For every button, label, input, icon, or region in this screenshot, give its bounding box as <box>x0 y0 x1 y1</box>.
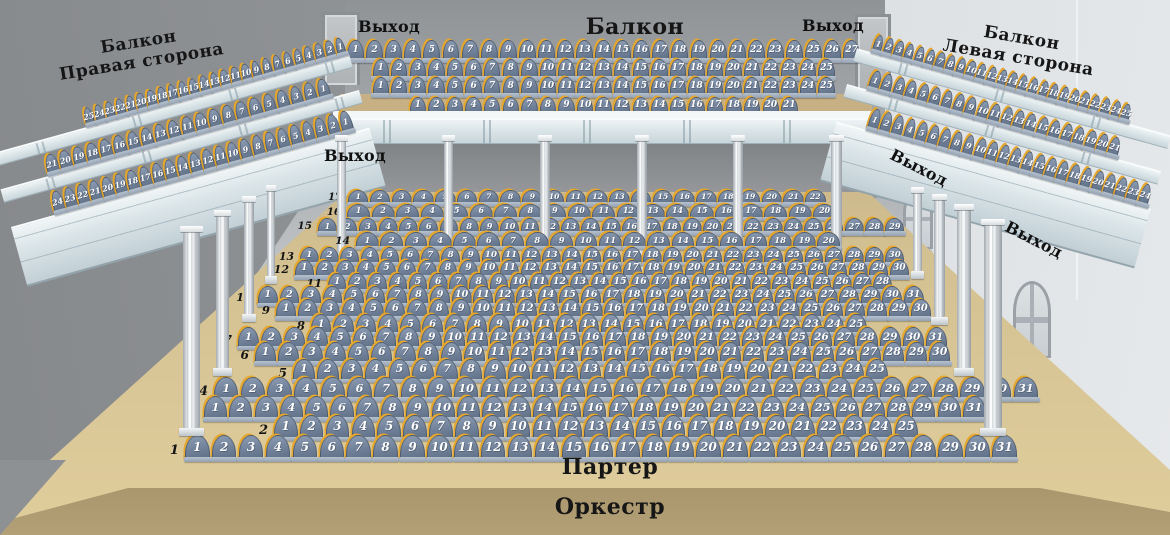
seat[interactable]: 15 <box>602 218 621 233</box>
parterre-row-number: 13 <box>279 250 294 263</box>
parterre-row: 1712345678910111213141516171819202122 <box>348 190 826 204</box>
seat[interactable]: 19 <box>793 232 816 248</box>
seat[interactable]: 17 <box>670 77 686 95</box>
seat[interactable]: 5 <box>399 218 418 233</box>
seat[interactable]: 23 <box>781 59 797 78</box>
seat[interactable]: 6 <box>419 218 438 233</box>
seat[interactable]: 22 <box>744 218 763 233</box>
seat[interactable]: 22 <box>748 40 765 60</box>
seat[interactable]: 3 <box>392 190 412 204</box>
seat[interactable]: 4 <box>421 204 444 219</box>
seat[interactable]: 1 <box>258 286 278 305</box>
seat[interactable]: 24 <box>786 40 803 60</box>
seat[interactable]: 13 <box>576 40 593 60</box>
column <box>216 216 229 368</box>
seat[interactable]: 10 <box>575 232 598 248</box>
seat[interactable]: 8 <box>503 59 519 78</box>
seat[interactable]: 3 <box>396 204 419 219</box>
seat[interactable]: 10 <box>540 77 556 95</box>
seat[interactable]: 11 <box>521 218 540 233</box>
seat[interactable]: 31 <box>963 396 986 419</box>
balcony-center-title: Балкон <box>520 14 750 40</box>
seat[interactable]: 1 <box>204 396 227 419</box>
column <box>984 225 1002 428</box>
seat[interactable]: 1 <box>348 190 368 204</box>
seat[interactable]: 12 <box>165 119 182 141</box>
seat[interactable]: 1 <box>185 435 210 459</box>
seat[interactable]: 6 <box>465 77 481 95</box>
balcony-center-row: 1234567891011121314151617181920212223242… <box>373 59 835 78</box>
seat[interactable]: 2 <box>391 59 407 78</box>
seat[interactable]: 20 <box>710 40 727 60</box>
seat[interactable]: 12 <box>587 190 607 204</box>
seat[interactable]: 23 <box>767 40 784 60</box>
column <box>934 200 945 317</box>
seat[interactable]: 3 <box>239 435 264 459</box>
seat[interactable]: 4 <box>379 218 398 233</box>
seat[interactable]: 29 <box>885 218 904 233</box>
seat[interactable]: 1 <box>255 342 276 363</box>
seat[interactable]: 5 <box>447 77 463 95</box>
seat[interactable]: 3 <box>359 218 378 233</box>
seat[interactable]: 8 <box>526 232 549 248</box>
seat[interactable]: 14 <box>672 232 695 248</box>
seat[interactable]: 20 <box>703 218 722 233</box>
seat[interactable]: 1 <box>315 77 332 99</box>
exit-label-top-left: Выход <box>358 17 420 36</box>
seat[interactable]: 11 <box>566 190 586 204</box>
seat[interactable]: 19 <box>707 77 723 95</box>
seat[interactable]: 29 <box>906 342 927 363</box>
seat[interactable]: 10 <box>540 59 556 78</box>
seat[interactable]: 8 <box>500 190 520 204</box>
seat[interactable]: 4 <box>428 59 444 78</box>
seat[interactable]: 16 <box>633 40 650 60</box>
seat[interactable]: 7 <box>494 204 517 219</box>
seat[interactable]: 1 <box>295 260 314 277</box>
seat[interactable]: 8 <box>373 435 398 459</box>
seat[interactable]: 16 <box>651 77 667 95</box>
exit-label-top-right: Выход <box>802 16 864 35</box>
seat[interactable]: 22 <box>750 435 775 459</box>
seat[interactable]: 22 <box>763 59 779 78</box>
seat[interactable]: 3 <box>410 59 426 78</box>
seat[interactable]: 25 <box>818 77 834 95</box>
seat[interactable]: 7 <box>479 190 499 204</box>
seat[interactable]: 18 <box>688 59 704 78</box>
seat[interactable]: 6 <box>443 40 460 60</box>
seat[interactable]: 30 <box>938 396 961 419</box>
seat[interactable]: 31 <box>1014 377 1038 399</box>
seat[interactable]: 30 <box>929 342 950 363</box>
seat[interactable]: 25 <box>1120 103 1133 122</box>
seat[interactable]: 6 <box>470 204 493 219</box>
seat[interactable]: 9 <box>400 435 425 459</box>
seat[interactable]: 24 <box>804 435 829 459</box>
seat[interactable]: 13 <box>609 190 629 204</box>
seat[interactable]: 13 <box>647 232 670 248</box>
seat[interactable]: 22 <box>763 77 779 95</box>
seat[interactable]: 14 <box>581 218 600 233</box>
seat[interactable]: 28 <box>911 435 936 459</box>
column <box>244 202 254 314</box>
seat[interactable]: 20 <box>725 77 741 95</box>
seat[interactable]: 5 <box>453 232 476 248</box>
seat[interactable]: 3 <box>410 77 426 95</box>
seat[interactable]: 13 <box>595 77 611 95</box>
parterre-row-number: 9 <box>262 303 270 317</box>
seat[interactable]: 13 <box>595 59 611 78</box>
seat[interactable]: 14 <box>614 77 630 95</box>
seat[interactable]: 19 <box>789 204 812 219</box>
seat[interactable]: 16 <box>651 59 667 78</box>
seat[interactable]: 12 <box>577 77 593 95</box>
seat[interactable]: 19 <box>683 218 702 233</box>
seat[interactable]: 29 <box>938 435 963 459</box>
parterre-row: 1512345678910111213141516171819202122232… <box>318 218 904 233</box>
seat[interactable]: 18 <box>663 218 682 233</box>
parterre-row-number: 1 <box>170 443 179 458</box>
seat[interactable]: 9 <box>521 59 537 78</box>
seat[interactable]: 16 <box>674 190 694 204</box>
seat[interactable]: 2 <box>370 190 390 204</box>
seat[interactable]: 27 <box>845 218 864 233</box>
seat[interactable]: 21 <box>783 190 803 204</box>
seat[interactable]: 30 <box>890 260 909 277</box>
seat[interactable]: 18 <box>688 77 704 95</box>
seat[interactable]: 12 <box>623 232 646 248</box>
seat[interactable]: 16 <box>720 232 743 248</box>
seat[interactable]: 14 <box>595 40 612 60</box>
seat[interactable]: 8 <box>481 40 498 60</box>
seat[interactable]: 19 <box>691 40 708 60</box>
seat[interactable]: 25 <box>805 40 822 60</box>
seat[interactable]: 7 <box>484 77 500 95</box>
seat[interactable]: 11 <box>454 435 479 459</box>
seat[interactable]: 23 <box>764 218 783 233</box>
seat[interactable]: 1 <box>347 204 370 219</box>
seat[interactable]: 4 <box>413 190 433 204</box>
seat[interactable]: 5 <box>423 40 440 60</box>
seat[interactable]: 6 <box>320 435 345 459</box>
seat[interactable]: 18 <box>764 204 787 219</box>
balcony-center-row: 1234567891011121314151617181920212223242… <box>347 40 860 60</box>
seat[interactable]: 2 <box>372 204 395 219</box>
seat[interactable]: 26 <box>824 40 841 60</box>
seat[interactable]: 18 <box>769 232 792 248</box>
seat[interactable]: 21 <box>744 77 760 95</box>
seat[interactable]: 10 <box>427 435 452 459</box>
seat[interactable]: 17 <box>652 40 669 60</box>
seat[interactable]: 18 <box>671 40 688 60</box>
seat[interactable]: 15 <box>633 77 649 95</box>
seat[interactable]: 2 <box>229 396 252 419</box>
seat[interactable]: 29 <box>889 299 909 318</box>
orchestra-title: Оркестр <box>495 494 725 520</box>
seat[interactable]: 11 <box>558 59 574 78</box>
seat[interactable]: 13 <box>561 218 580 233</box>
seat[interactable]: 26 <box>858 435 883 459</box>
seat[interactable]: 25 <box>804 218 823 233</box>
seat[interactable]: 4 <box>428 77 444 95</box>
seat[interactable]: 9 <box>550 232 573 248</box>
seat[interactable]: 23 <box>781 77 797 95</box>
seat[interactable]: 11 <box>592 204 615 219</box>
seat[interactable]: 19 <box>707 59 723 78</box>
seat[interactable]: 5 <box>293 435 318 459</box>
column <box>957 210 971 368</box>
seat[interactable]: 7 <box>484 59 500 78</box>
seat[interactable]: 24 <box>784 218 803 233</box>
theater-seating-plan: 1234567891011121314151617181920212223242… <box>0 0 1170 535</box>
seat[interactable]: 23 <box>777 435 802 459</box>
seat[interactable]: 15 <box>653 190 673 204</box>
seat[interactable]: 30 <box>911 299 931 318</box>
seat[interactable]: 20 <box>725 59 741 78</box>
seat[interactable]: 3 <box>385 40 402 60</box>
seat[interactable]: 9 <box>521 77 537 95</box>
seat[interactable]: 9 <box>480 218 499 233</box>
seat[interactable]: 2 <box>380 232 403 248</box>
seat[interactable]: 4 <box>266 435 291 459</box>
seat[interactable]: 20 <box>762 190 782 204</box>
seat[interactable]: 30 <box>965 435 990 459</box>
seat[interactable]: 10 <box>500 218 519 233</box>
seat[interactable]: 31 <box>992 435 1017 459</box>
seat[interactable]: 8 <box>503 77 519 95</box>
column <box>183 232 200 428</box>
seat[interactable]: 1 <box>318 218 337 233</box>
seat[interactable]: 1 <box>356 232 379 248</box>
seat[interactable]: 17 <box>745 232 768 248</box>
seat[interactable]: 24 <box>1137 183 1153 206</box>
seat[interactable]: 4 <box>429 232 452 248</box>
seat[interactable]: 24 <box>800 59 816 78</box>
seat[interactable]: 14 <box>614 59 630 78</box>
seat[interactable]: 22 <box>805 190 825 204</box>
balcony-center-row: 1234567891011121314151617181920212223242… <box>373 77 835 95</box>
seat[interactable]: 8 <box>460 218 479 233</box>
seat[interactable]: 15 <box>614 40 631 60</box>
seat[interactable]: 25 <box>818 59 834 78</box>
seat[interactable]: 24 <box>800 77 816 95</box>
seat[interactable]: 25 <box>831 435 856 459</box>
seat[interactable]: 17 <box>696 190 716 204</box>
seat[interactable]: 21 <box>729 40 746 60</box>
seat[interactable]: 11 <box>538 40 555 60</box>
parterre-row-number: 14 <box>335 235 350 247</box>
column <box>913 193 922 271</box>
seat[interactable]: 15 <box>690 204 713 219</box>
parterre-title: Партер <box>495 454 725 480</box>
seat[interactable]: 5 <box>447 59 463 78</box>
seat[interactable]: 12 <box>577 59 593 78</box>
seat[interactable]: 21 <box>1107 136 1123 157</box>
seat[interactable]: 2 <box>366 40 383 60</box>
seat[interactable]: 7 <box>462 40 479 60</box>
seat[interactable]: 10 <box>568 204 591 219</box>
seat[interactable]: 20 <box>817 232 840 248</box>
seat[interactable]: 2 <box>391 77 407 95</box>
seat[interactable]: 21 <box>723 435 748 459</box>
seat[interactable]: 6 <box>477 232 500 248</box>
seat[interactable]: 17 <box>670 59 686 78</box>
seat[interactable]: 15 <box>633 59 649 78</box>
seat[interactable]: 28 <box>867 299 887 318</box>
seat[interactable]: 14 <box>666 204 689 219</box>
seat[interactable]: 1 <box>373 59 389 78</box>
seat[interactable]: 7 <box>502 232 525 248</box>
seat[interactable]: 6 <box>457 190 477 204</box>
parterre-row-number: 15 <box>298 220 312 232</box>
seat[interactable]: 1 <box>276 299 296 318</box>
seat[interactable]: 10 <box>519 40 536 60</box>
seat[interactable]: 4 <box>404 40 421 60</box>
seat[interactable]: 21 <box>744 59 760 78</box>
seat[interactable]: 28 <box>865 218 884 233</box>
seat[interactable]: 11 <box>599 232 622 248</box>
seat[interactable]: 3 <box>405 232 428 248</box>
parterre-row: 161234567891011121314151617181920 <box>347 204 836 219</box>
seat[interactable]: 27 <box>885 435 910 459</box>
seat[interactable]: 11 <box>558 77 574 95</box>
seat[interactable]: 2 <box>212 435 237 459</box>
seat[interactable]: 12 <box>557 40 574 60</box>
seat[interactable]: 6 <box>465 59 481 78</box>
column <box>267 191 275 276</box>
parterre-row: 141234567891011121314151617181920 <box>356 232 840 248</box>
center-balcony-railing <box>337 118 873 144</box>
seat[interactable]: 15 <box>696 232 719 248</box>
parterre-row-number: 6 <box>241 348 249 362</box>
seat[interactable]: 1 <box>373 77 389 95</box>
seat[interactable]: 9 <box>500 40 517 60</box>
exit-label-middle-left: Выход <box>324 146 386 165</box>
seat[interactable]: 8 <box>519 204 542 219</box>
parterre-row-number: 12 <box>274 263 289 276</box>
seat[interactable]: 7 <box>346 435 371 459</box>
